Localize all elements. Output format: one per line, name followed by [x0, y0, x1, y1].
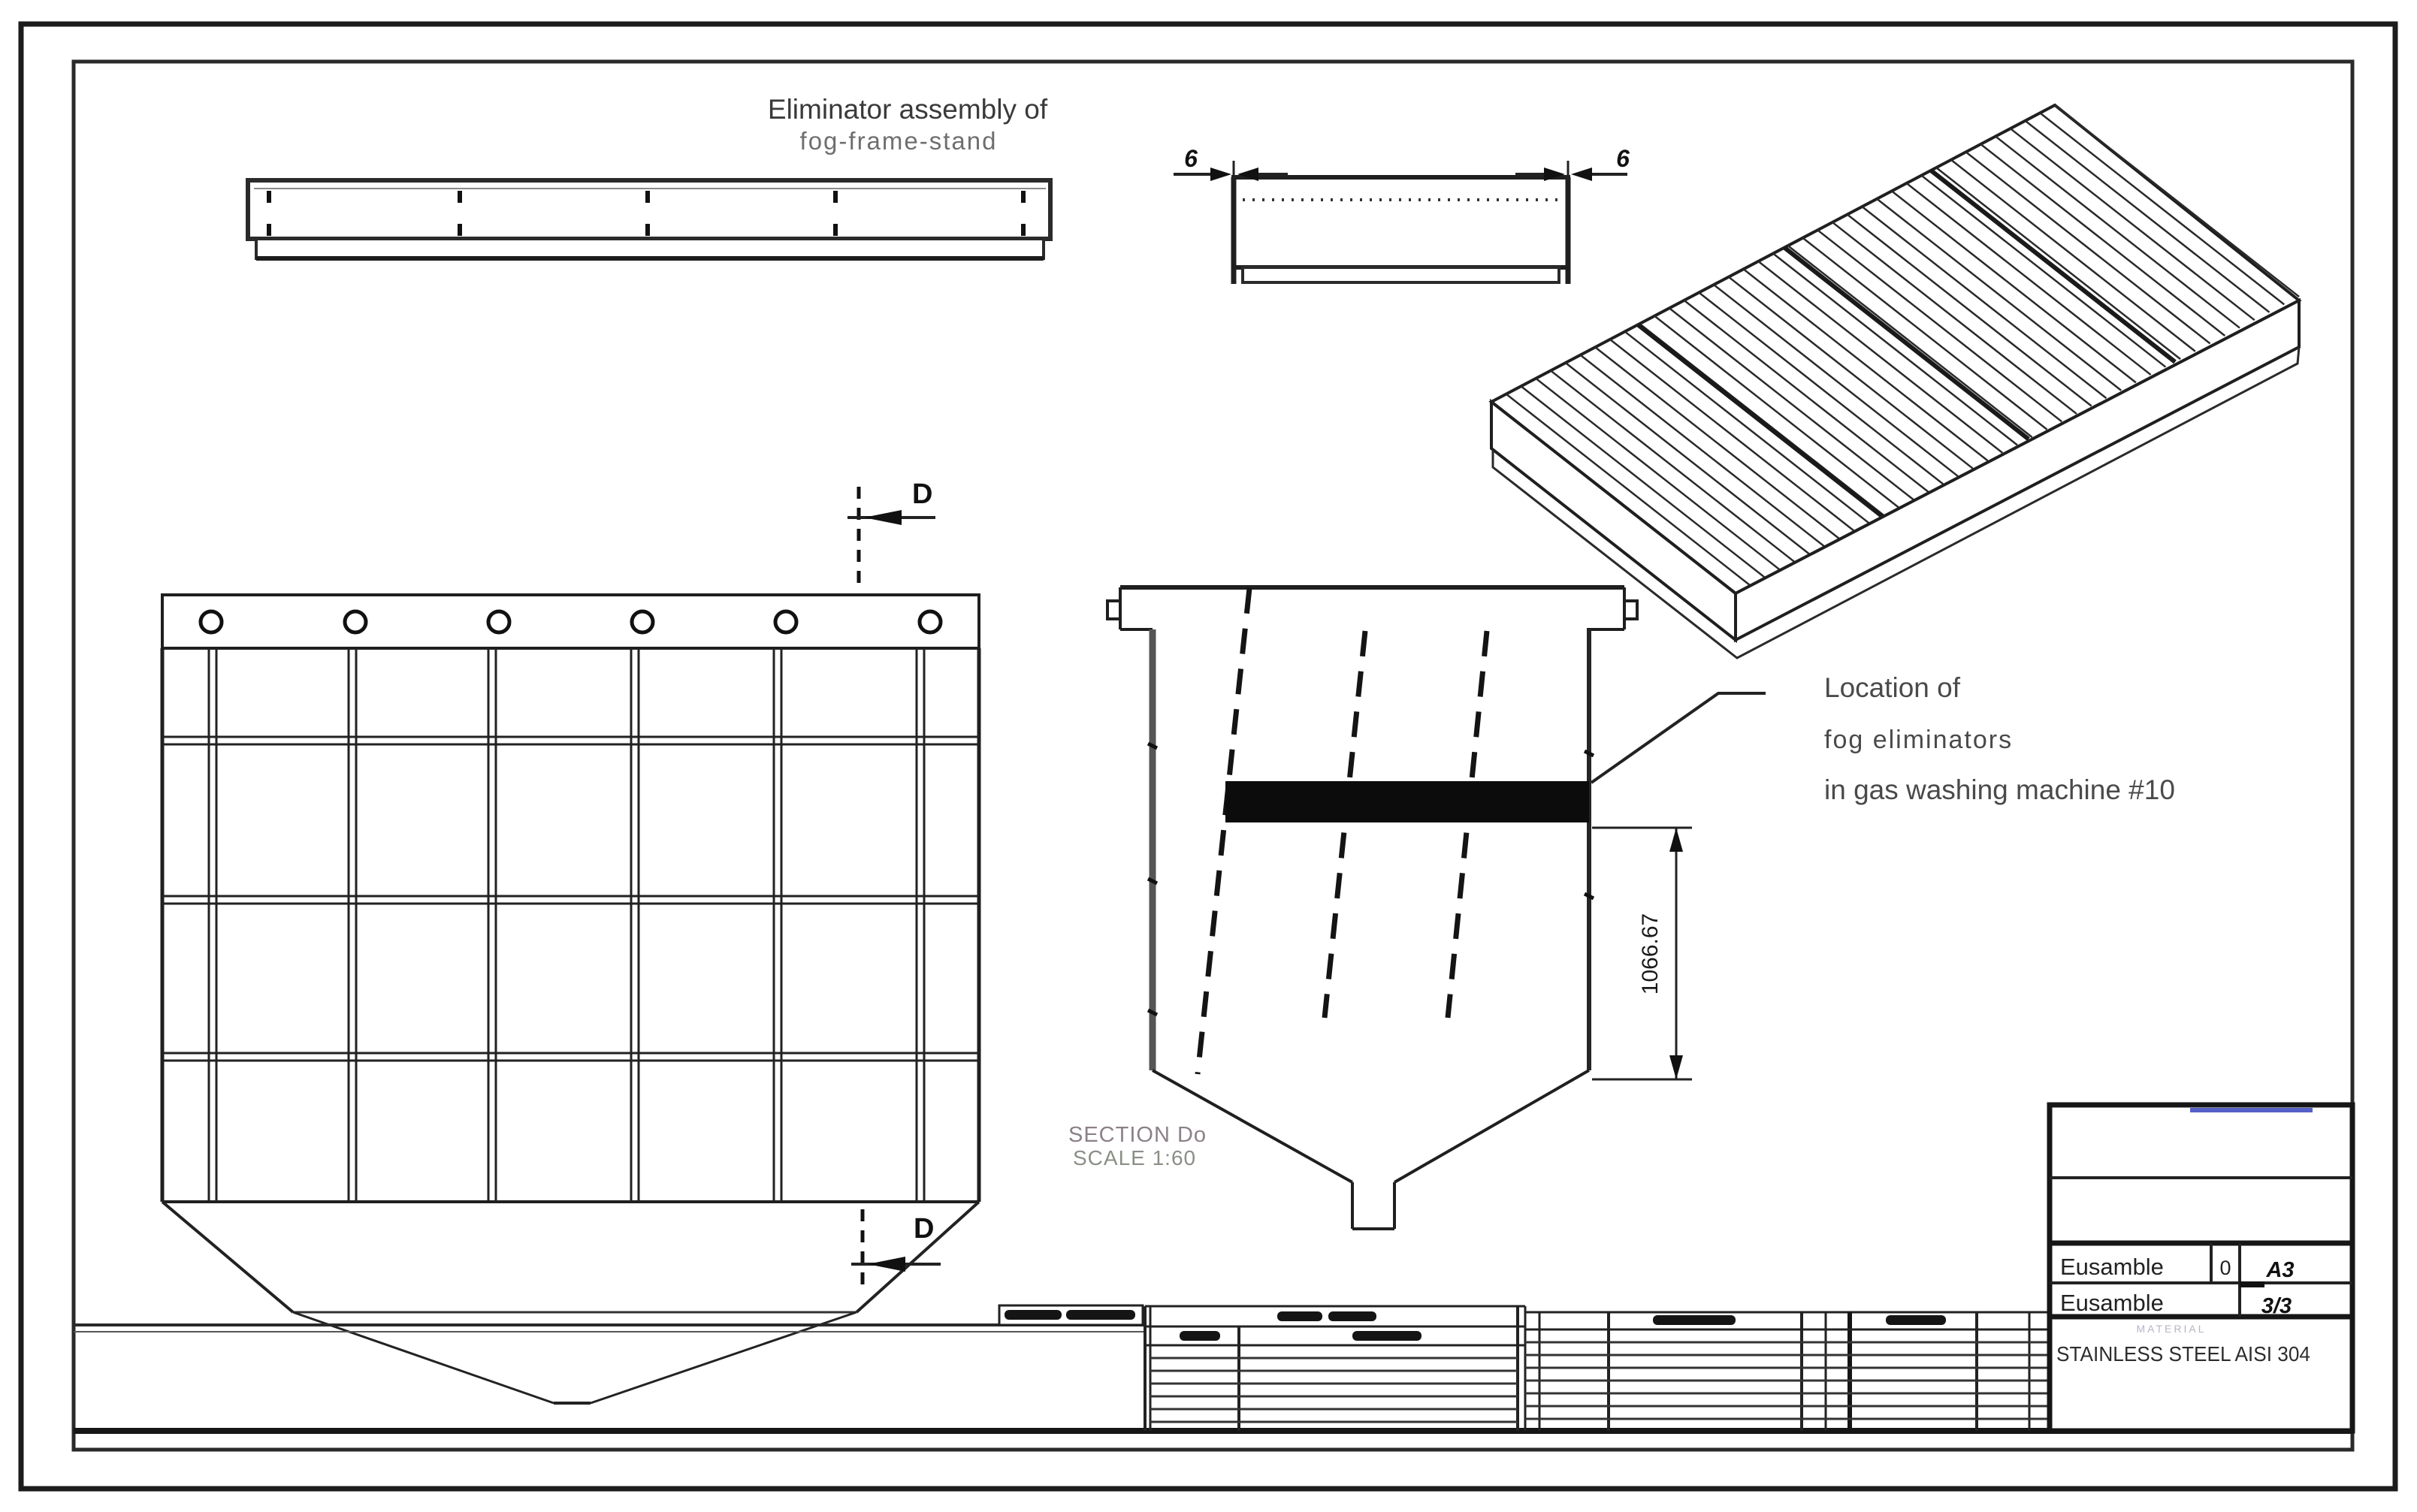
dim-height-value: 1066.67 — [1638, 913, 1663, 994]
titleblock-material-value: STAINLESS STEEL AISI 304 — [2056, 1342, 2310, 1366]
vessel-section-view: 1066.67 Location of fog eliminators in g… — [1068, 587, 2175, 1229]
front-grid-view: D D — [162, 478, 979, 1403]
strip-row-rules — [1150, 1342, 2050, 1422]
engineering-drawing: Eliminator assembly of fog-frame-stand 6 — [0, 0, 2417, 1508]
fog-eliminator-band — [1225, 781, 1589, 822]
strip-table-left — [1145, 1306, 1525, 1431]
strip-header-cell — [999, 1305, 1143, 1325]
annotation-note: Location of fog eliminators in gas washi… — [1824, 672, 2175, 805]
annotation-line-3: in gas washing machine #10 — [1824, 774, 2175, 805]
drawing-title: Eliminator assembly of — [768, 94, 1048, 125]
titleblock-material-label: MATERIAL — [2137, 1323, 2207, 1335]
annotation-line-1: Location of — [1824, 672, 1961, 703]
dim-6-left: 6 — [1184, 145, 1198, 172]
titleblock-name-2: Eusamble — [2060, 1290, 2164, 1316]
grid-outline — [162, 648, 979, 1202]
section-scale-label: SECTION Do SCALE 1:60 — [1068, 1123, 1207, 1169]
grid-dividers — [162, 648, 979, 1202]
title-block: Eusamble 0 A3 Eusamble 3/3 MATERIAL STAI… — [2050, 1105, 2352, 1431]
titleblock-size: A3 — [2265, 1258, 2294, 1282]
revision-strip — [74, 1305, 2352, 1431]
leader-line — [1591, 693, 1766, 783]
drawing-sheet: Eliminator assembly of fog-frame-stand 6 — [0, 0, 2417, 1508]
height-dimension: 1066.67 — [1592, 828, 1692, 1079]
section-letter-top: D — [912, 478, 932, 510]
section-name: SECTION Do — [1068, 1123, 1207, 1147]
dim-6-right: 6 — [1616, 145, 1630, 172]
side-view-frame — [248, 180, 1050, 258]
drawing-subtitle: fog-frame-stand — [800, 127, 998, 155]
hopper-outline — [162, 1202, 979, 1403]
channel-section-view: 6 6 — [1174, 145, 1630, 284]
vessel-hopper — [1153, 1070, 1589, 1229]
section-scale: SCALE 1:60 — [1073, 1146, 1196, 1169]
spray-lines — [1198, 588, 1487, 1074]
titleblock-name-1: Eusamble — [2060, 1254, 2164, 1280]
titleblock-revision: 0 — [2219, 1257, 2231, 1279]
section-mark-top: D — [847, 478, 935, 584]
titleblock-sheet-number: 3/3 — [2261, 1294, 2292, 1318]
isometric-view — [1491, 105, 2299, 658]
annotation-line-2: fog eliminators — [1824, 726, 2013, 754]
section-letter-bottom: D — [914, 1213, 934, 1245]
